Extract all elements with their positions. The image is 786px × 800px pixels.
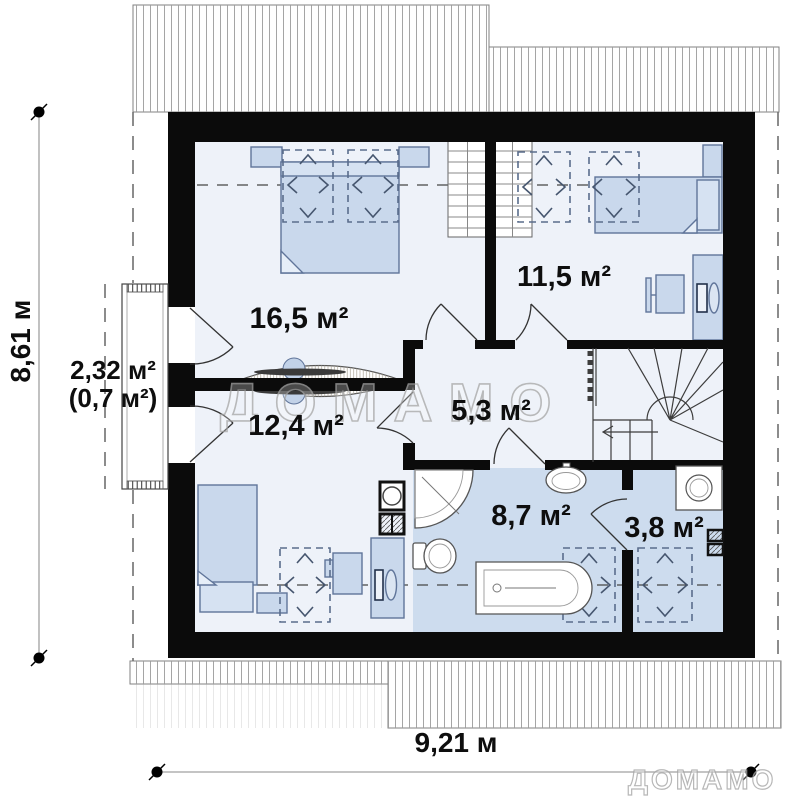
balcony-area-reduced: (0,7 м²) <box>33 384 193 412</box>
dimension-label-width: 9,21 м <box>376 728 536 758</box>
washing-machine-icon <box>676 466 722 510</box>
desk-chair-icon-2 <box>371 538 404 618</box>
room-label-hallway: 5,3 м² <box>411 396 571 427</box>
room-label-balcony: 2,32 м² (0,7 м²) <box>33 356 193 412</box>
toilet-icon <box>413 539 456 573</box>
room-label-bedroom-1: 16,5 м² <box>219 303 379 335</box>
bathtub-icon <box>476 562 592 614</box>
vanity-duct-icon <box>380 482 404 534</box>
room-label-bedroom-3: 12,4 м² <box>216 411 376 442</box>
room-label-storage: 3,8 м² <box>584 513 744 544</box>
dimension-label-height: 8,61 м <box>6 261 36 421</box>
balcony-area-total: 2,32 м² <box>33 356 193 384</box>
watermark-small: ДОМАМО <box>628 764 776 795</box>
floor-plan-page: ДОМАМО ДОМАМО 16,5 м² 11,5 м² 2,32 м² (0… <box>0 0 786 800</box>
room-label-bedroom-2: 11,5 м² <box>484 262 644 293</box>
